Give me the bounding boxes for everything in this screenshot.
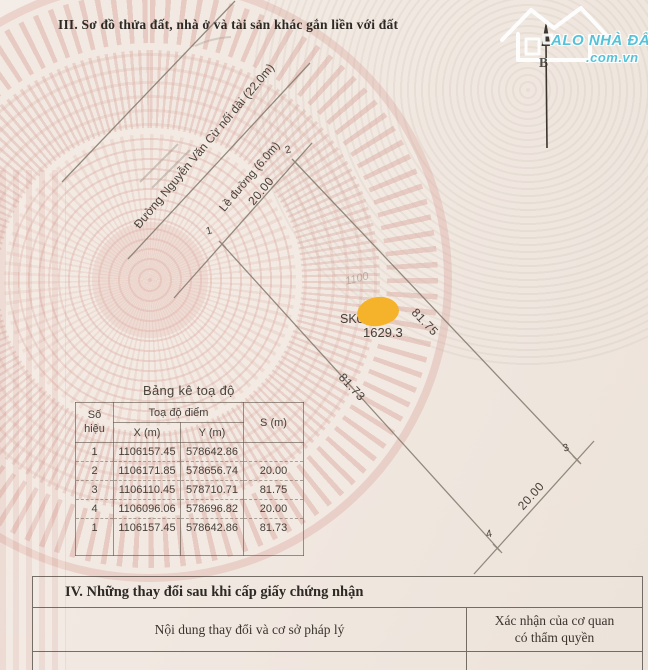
coord-table-body: 11106157.45578642.8621106171.85578656.74… (76, 443, 304, 538)
col-header-coords-group: Toạ độ điểm (114, 403, 244, 423)
coord-table-row: 11106157.45578642.86 (76, 443, 304, 462)
coord-cell-y: 578656.74 (181, 462, 244, 481)
coord-cell-s: 81.73 (244, 519, 304, 538)
certificate-page: III. Sơ đồ thửa đất, nhà ở và tài sản kh… (0, 0, 648, 670)
sidewalk-edge-line (128, 63, 310, 259)
coord-cell-x: 1106096.06 (114, 500, 181, 519)
section3-title: III. Sơ đồ thửa đất, nhà ở và tài sản kh… (58, 17, 398, 33)
coord-cell-x: 1106110.45 (114, 481, 181, 500)
coord-cell-y: 578710.71 (181, 481, 244, 500)
coord-table-title: Bảng kê toạ độ (143, 383, 235, 398)
coord-table-row: 21106171.85578656.7420.00 (76, 462, 304, 481)
coord-cell-s: 20.00 (244, 500, 304, 519)
coord-table: Số hiệu Toạ độ điểm S (m) X (m) Y (m) 11… (75, 402, 304, 556)
coord-cell-id: 2 (76, 462, 114, 481)
change-content-empty (33, 652, 466, 670)
coord-cell-y: 578642.86 (181, 519, 244, 538)
parcel-right-side (295, 162, 581, 464)
col-header-y: Y (m) (181, 423, 244, 443)
section4-title: IV. Những thay đổi sau khi cấp giấy chứn… (65, 584, 363, 601)
coord-cell-x: 1106157.45 (114, 519, 181, 538)
section4-content-row (33, 652, 642, 670)
section4-header-row: IV. Những thay đổi sau khi cấp giấy chứn… (33, 577, 642, 608)
coord-cell-x: 1106171.85 (114, 462, 181, 481)
north-label: B (539, 55, 548, 71)
coord-cell-id: 4 (76, 500, 114, 519)
coord-cell-y: 578696.82 (181, 500, 244, 519)
change-content-label: Nội dung thay đổi và cơ sở pháp lý (155, 622, 345, 638)
col-header-point-id: Số hiệu (76, 403, 114, 443)
coord-cell-id: 1 (76, 443, 114, 462)
section4-subheader-row: Nội dung thay đổi và cơ sở pháp lý Xác n… (33, 608, 642, 652)
authority-label-line2: có thẩm quyền (515, 630, 594, 647)
section4-box: IV. Những thay đổi sau khi cấp giấy chứn… (32, 576, 643, 670)
coord-cell-s: 81.75 (244, 481, 304, 500)
coord-table-row: 31106110.45578710.7181.75 (76, 481, 304, 500)
col-header-s: S (m) (244, 403, 304, 443)
ghost-scribble-3 (195, 37, 231, 46)
authority-label-line1: Xác nhận của cơ quan (495, 613, 615, 630)
parcel-back-edge (474, 441, 594, 574)
coord-cell-id: 1 (76, 519, 114, 538)
authority-cell: Xác nhận của cơ quan có thẩm quyền (466, 608, 642, 651)
coord-cell-x: 1106157.45 (114, 443, 181, 462)
coord-table-row: 41106096.06578696.8220.00 (76, 500, 304, 519)
parcel-area: 1629.3 (363, 325, 403, 340)
coord-table-row: 11106157.45578642.8681.73 (76, 519, 304, 538)
coord-cell-y: 578642.86 (181, 443, 244, 462)
coord-cell-id: 3 (76, 481, 114, 500)
logo-domain-text: .com.vn (586, 50, 639, 65)
change-content-cell: Nội dung thay đổi và cơ sở pháp lý (33, 608, 466, 651)
coord-cell-s (244, 443, 304, 462)
parcel-diagram-lines (0, 0, 648, 670)
coord-cell-s: 20.00 (244, 462, 304, 481)
logo-brand-text: ALO NHÀ ĐẤT (551, 32, 648, 49)
col-header-x: X (m) (114, 423, 181, 443)
authority-empty (466, 652, 642, 670)
